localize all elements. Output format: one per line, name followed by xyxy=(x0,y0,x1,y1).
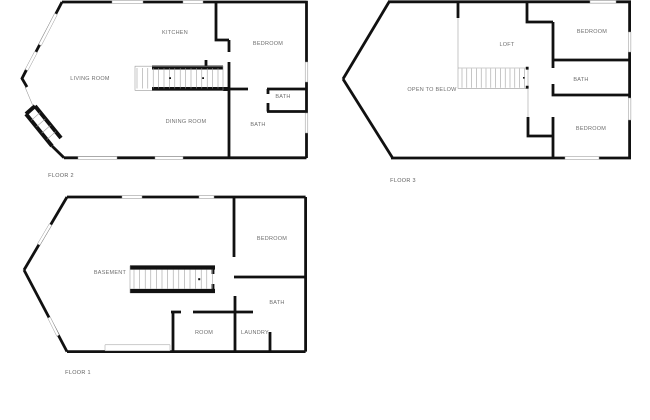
floor2-stair-and-fireplace-walls xyxy=(26,68,229,147)
floor1-stair-markers xyxy=(198,278,200,280)
room-label-kitchen: KITCHEN xyxy=(162,30,188,36)
room-label-laundry: LAUNDRY xyxy=(241,330,269,336)
floorplan-page: LIVING ROOM KITCHEN BEDROOM DINING ROOM … xyxy=(0,0,650,420)
room-label-open-to-below: OPEN TO BELOW xyxy=(407,87,456,93)
floor1-walls xyxy=(24,197,306,352)
floor1-stair-walls xyxy=(130,268,215,292)
room-label-bedroom-bottom-f3: BEDROOM xyxy=(576,126,606,132)
floor2-windows xyxy=(25,1,308,160)
room-label-bedroom-f1: BEDROOM xyxy=(257,236,287,242)
floor1-plan xyxy=(24,196,306,352)
floorplan-drawing xyxy=(0,0,650,420)
floor2-plan xyxy=(22,1,308,160)
floor2-title: FLOOR 2 xyxy=(48,173,74,179)
room-label-bedroom-f2: BEDROOM xyxy=(253,41,283,47)
room-label-dining-room: DINING ROOM xyxy=(166,119,207,125)
room-label-bath-f3: BATH xyxy=(573,77,588,83)
floor3-title: FLOOR 3 xyxy=(390,178,416,184)
room-label-basement: BASEMENT xyxy=(94,270,126,276)
floor2-stair-markers xyxy=(169,77,204,79)
room-label-bedroom-top-f3: BEDROOM xyxy=(577,29,607,35)
room-label-room: ROOM xyxy=(195,330,213,336)
room-label-bath-upper-f2: BATH xyxy=(275,94,290,100)
room-label-bath-f1: BATH xyxy=(269,300,284,306)
room-label-living-room: LIVING ROOM xyxy=(70,76,109,82)
room-label-loft: LOFT xyxy=(499,42,514,48)
room-label-bath-lower-f2: BATH xyxy=(250,122,265,128)
floor1-title: FLOOR 1 xyxy=(65,370,91,376)
floor3-loft-and-stairs-outline xyxy=(458,18,528,117)
